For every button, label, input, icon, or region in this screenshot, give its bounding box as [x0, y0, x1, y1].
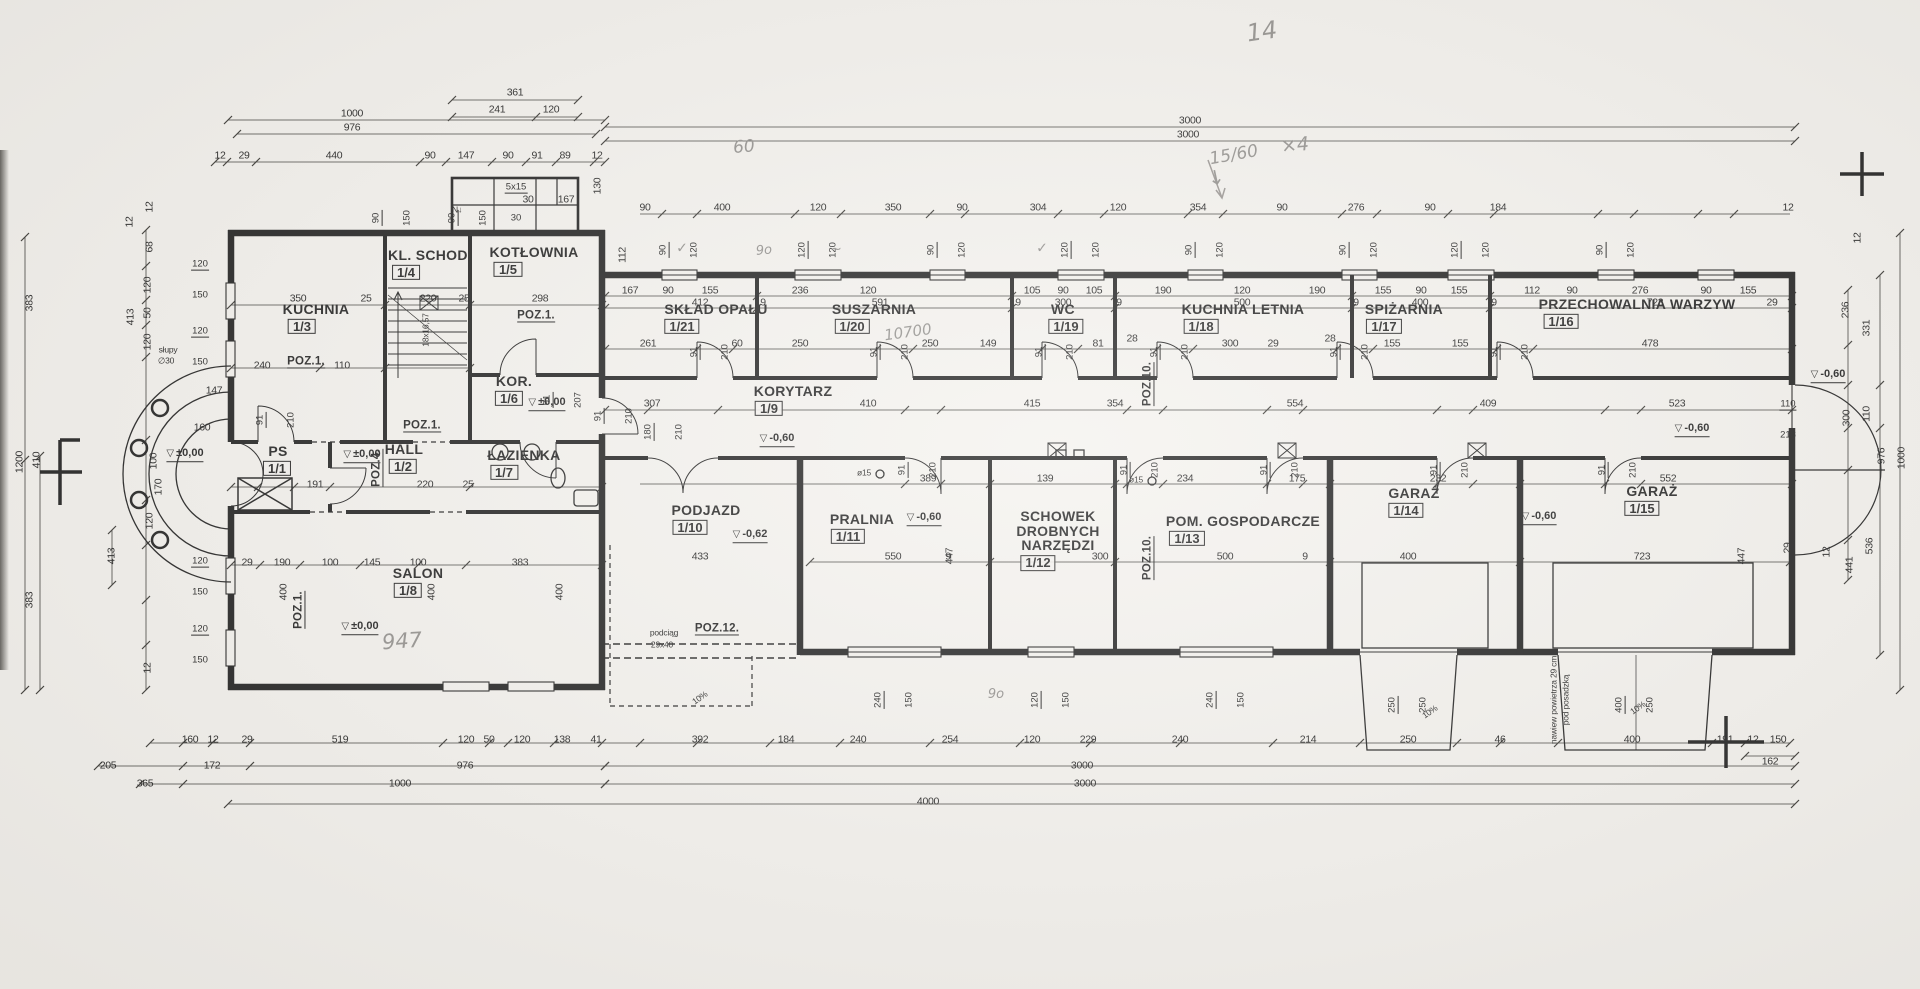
floorplan-drawing — [0, 0, 1920, 989]
floor-plan-canvas: 3612411201000976300030001229440901479091… — [0, 0, 1920, 989]
walls — [40, 152, 1885, 768]
dimension-lines — [21, 96, 1904, 808]
